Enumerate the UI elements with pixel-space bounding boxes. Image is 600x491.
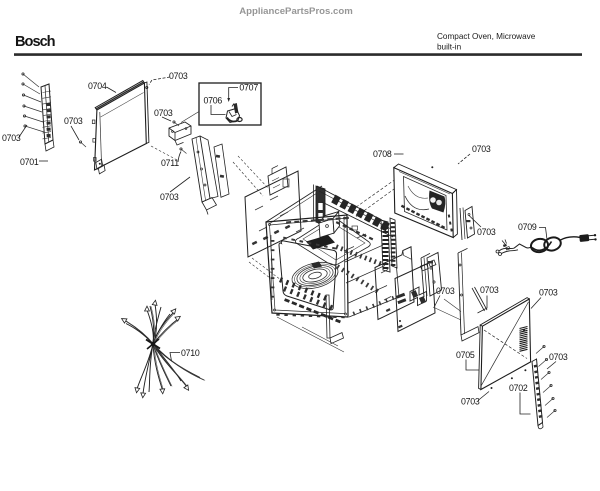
svg-text:0703: 0703 — [549, 352, 568, 362]
svg-text:0710: 0710 — [181, 348, 200, 358]
svg-text:0703: 0703 — [64, 116, 83, 126]
svg-text:0709: 0709 — [518, 222, 537, 232]
svg-text:0708: 0708 — [373, 149, 392, 159]
svg-text:0703: 0703 — [169, 71, 188, 81]
svg-text:0706: 0706 — [204, 96, 223, 106]
svg-text:0703: 0703 — [154, 108, 173, 118]
svg-text:AppliancePartsPros.com: AppliancePartsPros.com — [239, 6, 353, 17]
svg-text:0703: 0703 — [480, 285, 499, 295]
svg-text:0703: 0703 — [461, 397, 480, 407]
svg-text:built-in: built-in — [437, 43, 462, 52]
svg-text:0703: 0703 — [477, 227, 496, 237]
svg-text:0707: 0707 — [239, 83, 258, 93]
svg-text:0703: 0703 — [160, 192, 179, 202]
svg-text:0704: 0704 — [88, 81, 107, 91]
svg-text:0703: 0703 — [539, 288, 558, 298]
svg-text:0703: 0703 — [436, 286, 455, 296]
svg-text:0703: 0703 — [2, 133, 21, 143]
svg-text:0701: 0701 — [20, 157, 39, 167]
svg-text:0705: 0705 — [456, 350, 475, 360]
svg-text:0703: 0703 — [472, 144, 491, 154]
svg-text:Compact Oven, Microwave: Compact Oven, Microwave — [437, 32, 536, 41]
svg-text:Bosch: Bosch — [15, 34, 56, 50]
svg-text:0702: 0702 — [509, 383, 528, 393]
